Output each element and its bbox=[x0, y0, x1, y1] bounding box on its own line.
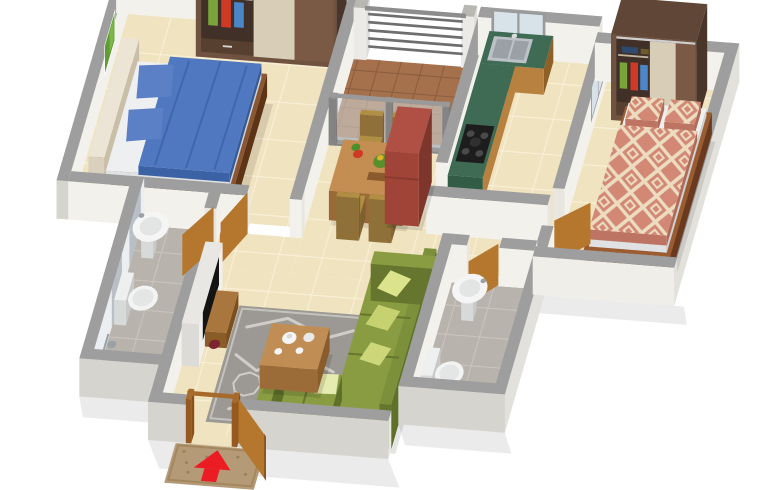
bedroom2-wardrobe-shirt-red bbox=[631, 62, 639, 90]
balcony-railing-bar-2 bbox=[368, 37, 463, 47]
bedroom2-pillow-1-top-face bbox=[625, 96, 664, 121]
master-bed-pillow-2 bbox=[126, 108, 163, 142]
coffee-table-south-face bbox=[260, 365, 318, 393]
bedroom2-wardrobe-folded-clothes bbox=[622, 46, 638, 54]
master-wardrobe-shirt-red bbox=[221, 0, 231, 28]
bedroom2-wardrobe-folded-clothes-2 bbox=[641, 49, 649, 55]
balcony-column-west-south-face bbox=[354, 7, 367, 60]
bedroom2-wardrobe-shirt-blue bbox=[640, 65, 648, 91]
entrance-door-frame-east-south-face bbox=[232, 403, 237, 448]
master-wardrobe-slide-brown bbox=[295, 0, 334, 63]
coffee-table-top-face bbox=[260, 323, 330, 369]
bathroom2-east-wall-south-face bbox=[493, 394, 505, 433]
master-west-wall-south-face bbox=[57, 180, 69, 219]
master-south-wall-east-south-face bbox=[290, 199, 302, 238]
balcony-railing-bar-4 bbox=[368, 21, 463, 31]
living-south-wall-west-south-face bbox=[148, 402, 186, 443]
bathroom1-toilet-tank-south-face bbox=[114, 300, 126, 326]
dining-chair-south1-back-south-face bbox=[336, 196, 359, 241]
balcony-railing-bar-3 bbox=[368, 29, 463, 39]
floorplan-page bbox=[0, 0, 780, 490]
bathroom2-north-wall-west-top-face bbox=[452, 234, 470, 246]
entrance-door-leaf-edge bbox=[264, 434, 266, 481]
dining-chair-south1-back-east-face bbox=[359, 193, 360, 240]
master-wardrobe-shirt-green bbox=[208, 0, 218, 26]
floorplan-scene bbox=[57, 0, 740, 490]
bedroom2-wardrobe-top-face bbox=[611, 0, 707, 41]
entrance-door-frame-west-south-face bbox=[186, 399, 191, 444]
balcony-railing-bar-1 bbox=[368, 45, 463, 55]
balcony-slider-mullion-1-south-face bbox=[329, 98, 337, 146]
floorplan-canvas bbox=[0, 0, 780, 490]
refrigerator-south-face bbox=[385, 151, 419, 227]
bedroom2-wardrobe-shirt-green bbox=[620, 62, 628, 89]
master-wardrobe-shirt-blue bbox=[234, 2, 244, 28]
master-bed-pillow-1 bbox=[136, 64, 174, 98]
tv-unit-south-face bbox=[182, 323, 199, 367]
bedroom2-pillow-2-top-face bbox=[664, 99, 701, 124]
master-wardrobe-slide-cream bbox=[254, 0, 295, 60]
